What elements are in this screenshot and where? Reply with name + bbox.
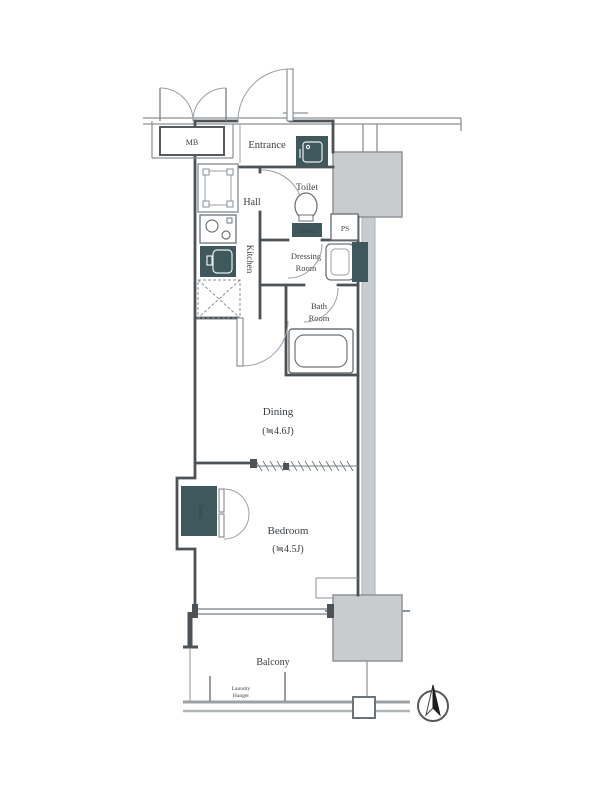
bedroom-size: (≒4.5J) [272, 544, 303, 555]
entrance-door-arc [238, 69, 290, 121]
bedroom-label: Bedroom [268, 525, 309, 537]
closet-door-leaf-top [219, 489, 224, 512]
balcony-label: Balcony [256, 657, 289, 668]
hall-dining-door-arc [243, 321, 288, 366]
kitchen: Kitchen [198, 215, 255, 318]
laundry-hanger-label-2: Hanger [233, 693, 249, 699]
column-bottom [333, 595, 402, 661]
entrance-door-leaf [287, 69, 293, 121]
meter-box: MB [152, 88, 233, 158]
window-stub-left [192, 604, 198, 618]
sliding-partition [250, 459, 358, 471]
laundry-hanger-label-1: Laundry [232, 686, 251, 692]
partition-post-mid [283, 463, 289, 470]
closet-label: Closet [197, 503, 203, 519]
window-stub-right [327, 604, 334, 618]
dressing-room: Dressing Room [288, 242, 368, 282]
closet-door-arcs [224, 489, 249, 539]
partition-post-left [250, 459, 257, 468]
toilet-badge-label: CF/Wa [300, 230, 315, 235]
closet-door-leaf-bottom [219, 514, 224, 537]
hall-label: Hall [243, 197, 260, 208]
dressing-room-label-1: Dressing [291, 251, 322, 261]
stove-counter [200, 215, 236, 243]
meter-box-door-arcs [160, 88, 226, 121]
dining-label: Dining [263, 406, 294, 418]
kitchen-label: Kitchen [245, 245, 255, 274]
north-compass [418, 685, 448, 721]
pipe-space-label: PS [341, 224, 349, 233]
toilet-label: Toilet [296, 183, 318, 193]
wall-left [177, 121, 195, 612]
bedroom: Bedroom (≒4.5J) Closet [181, 486, 358, 618]
column-top [333, 152, 402, 217]
railing-junction-box [353, 697, 375, 718]
floorplan: MB Entrance Hall Toilet C [0, 0, 600, 800]
bath-room: Bath Room [289, 288, 353, 373]
storage-block [352, 242, 368, 282]
entrance-label: Entrance [248, 140, 286, 151]
dressing-room-label-2: Room [296, 263, 317, 273]
dining-room: Dining (≒4.6J) [262, 406, 294, 437]
toilet-tank-icon [299, 215, 313, 221]
refrigerator-space [198, 280, 240, 318]
bath-room-label-1: Bath [311, 301, 328, 311]
hall-dining-door-leaf [237, 318, 243, 366]
dining-size: (≒4.6J) [262, 426, 293, 437]
meter-box-label: MB [186, 138, 198, 147]
floorplan-drawing: MB Entrance Hall Toilet C [0, 0, 600, 800]
